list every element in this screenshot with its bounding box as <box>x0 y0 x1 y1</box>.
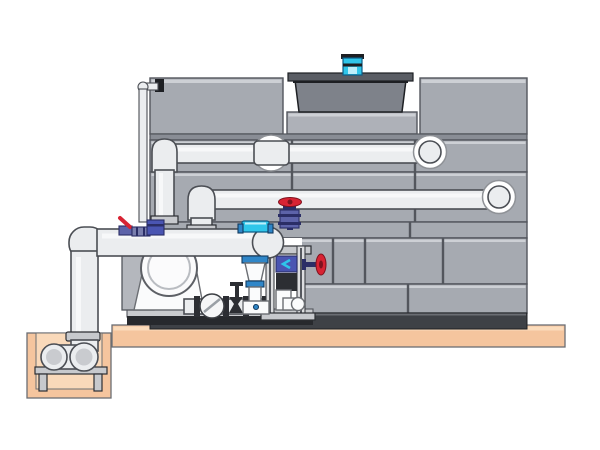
panel-divider-band <box>150 134 527 140</box>
panel-row-2b-bevel <box>152 174 526 177</box>
middle-pipe-highlight <box>207 194 496 198</box>
sensor-lug-left <box>238 224 243 233</box>
sensor-highlight <box>245 223 266 225</box>
upper-pipe-downcomer <box>155 170 174 219</box>
sensor-lug-right <box>268 224 273 233</box>
upper-pipe-end-dome <box>419 141 441 163</box>
fan-motor-band <box>343 64 362 67</box>
globe-valve-flange <box>278 214 301 217</box>
upper-pipe-highlight <box>170 148 426 152</box>
main-drop-highlight <box>76 257 81 335</box>
upper-pipe-coupling <box>254 141 289 165</box>
pipe-flange <box>194 296 200 317</box>
fitting-ring <box>136 227 138 236</box>
side-valve-flange <box>302 259 306 270</box>
globe-valve-hub <box>288 200 293 205</box>
sump-bell-mouth <box>46 349 62 365</box>
cooling-tower-diagram <box>0 0 600 450</box>
side-valve-hub <box>319 261 323 269</box>
middle-pipe-elbow-left <box>188 186 215 220</box>
dosing-pump-band <box>147 224 164 227</box>
pipe-support-stand-leg-left <box>39 374 47 391</box>
cone-top-flange <box>242 256 268 263</box>
cone-drop-pipe <box>249 287 261 302</box>
injection-cone <box>245 263 265 281</box>
fan-motor-screen <box>348 67 357 74</box>
gate-valve-stem <box>235 285 239 297</box>
make-up-pipe-vertical <box>139 89 147 222</box>
top-panel-right-bevel <box>422 80 526 84</box>
top-panel-left-bevel <box>152 80 282 84</box>
middle-pipe-end-dome <box>488 186 510 208</box>
sump-elbow-shade <box>76 349 93 366</box>
top-panel-right <box>420 78 527 134</box>
globe-valve-body <box>280 210 299 228</box>
middle-pipe-horizontal <box>203 190 500 209</box>
frame-instrument-box <box>276 256 297 272</box>
pipe-support-stand-leg-right <box>94 374 102 391</box>
cone-base-indicator <box>254 305 259 310</box>
dosing-pump <box>147 220 164 235</box>
globe-valve-flange <box>278 222 301 225</box>
cone-collar <box>246 281 264 287</box>
tower-plinth-bevel <box>289 114 416 117</box>
frame-drain-elbow-dome <box>292 298 305 311</box>
upper-pipe-elbow-left <box>152 139 177 172</box>
main-pipe-drop <box>71 251 98 339</box>
fan-cowl <box>295 80 406 112</box>
fan-cowl-shadow-line <box>293 81 408 83</box>
fitting-ring <box>143 227 145 236</box>
top-panel-left <box>150 78 283 134</box>
upper-downcomer-highlight <box>159 173 163 217</box>
upper-pipe-horizontal <box>166 144 430 163</box>
frame-panel <box>276 273 297 291</box>
illustration-canvas <box>0 0 600 450</box>
